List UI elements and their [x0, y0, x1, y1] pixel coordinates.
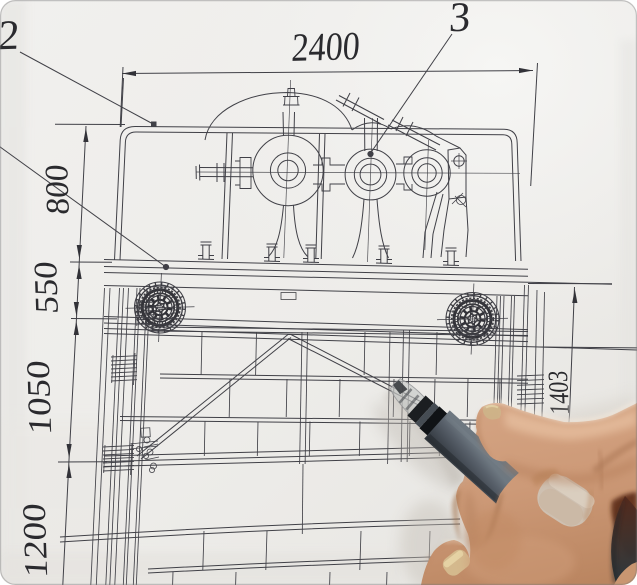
svg-text:2400: 2400 [290, 23, 361, 70]
svg-text:1200: 1200 [17, 503, 56, 579]
svg-text:2: 2 [0, 13, 21, 60]
svg-text:1403: 1403 [543, 370, 576, 415]
svg-text:1050: 1050 [21, 360, 60, 436]
svg-text:550: 550 [28, 261, 66, 315]
svg-text:800: 800 [39, 164, 77, 216]
